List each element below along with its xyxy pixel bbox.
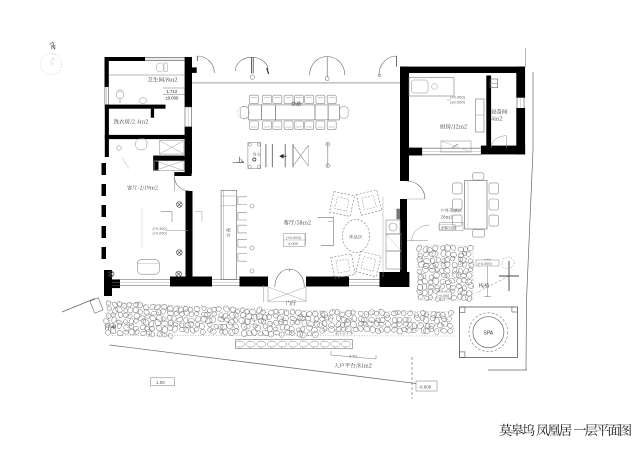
svg-text:4.10: 4.10 <box>442 226 449 230</box>
svg-text:+0.090: +0.090 <box>438 294 449 298</box>
svg-text:1.70: 1.70 <box>349 354 358 359</box>
svg-text:-0.600: -0.600 <box>419 385 432 390</box>
svg-text:(+0.000): (+0.000) <box>286 235 302 240</box>
svg-text:1.713: 1.713 <box>167 89 178 94</box>
svg-text:±0.000: ±0.000 <box>166 95 179 100</box>
svg-text:(+0.090): (+0.090) <box>478 262 493 266</box>
svg-text:(+0.000): (+0.000) <box>153 232 168 236</box>
svg-text:4.000: 4.000 <box>288 241 299 246</box>
svg-text:(±0.000): (±0.000) <box>450 99 466 104</box>
svg-text:(+0.300): (+0.300) <box>153 227 168 231</box>
svg-text:SPA: SPA <box>484 331 494 337</box>
svg-text:1.00: 1.00 <box>156 380 165 385</box>
